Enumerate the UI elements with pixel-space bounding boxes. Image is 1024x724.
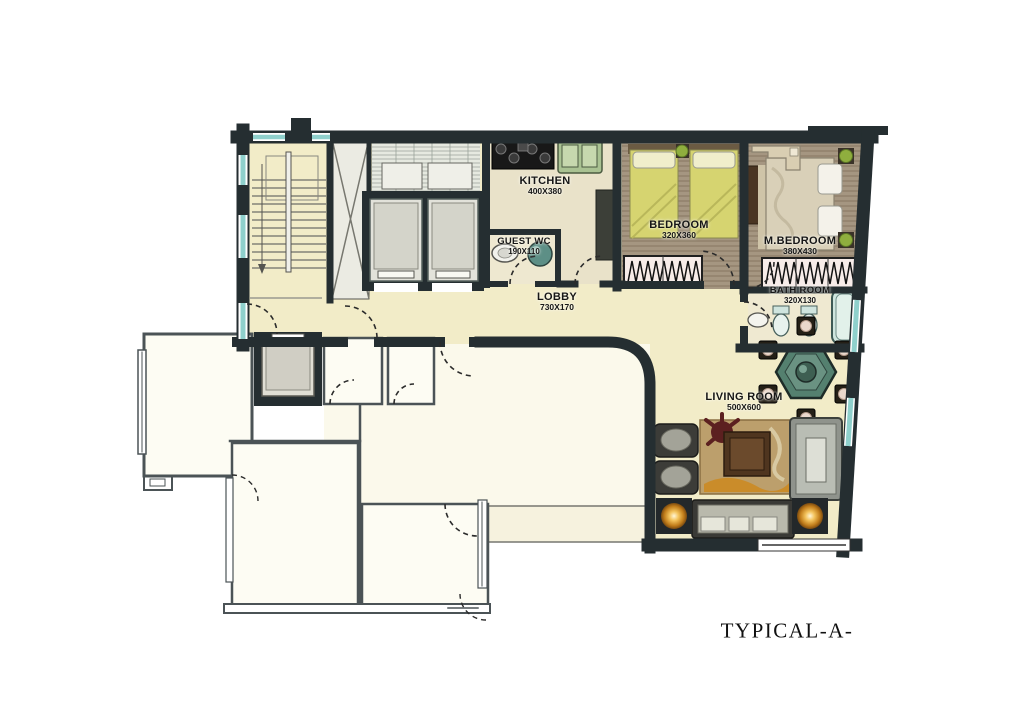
room-dims: 500X600 (727, 403, 761, 413)
living-window-sill (758, 539, 850, 551)
armchair-1 (654, 424, 698, 457)
floor-lamp-2 (792, 498, 828, 534)
elevator-block (362, 191, 484, 292)
toilet-1 (773, 306, 789, 336)
room-dims: 400X380 (528, 187, 562, 197)
bedside-plant (676, 144, 689, 158)
coffee-table (724, 432, 770, 476)
elevator-1 (370, 199, 422, 292)
room-dims: 730X170 (540, 303, 574, 313)
room-dims: 380X430 (783, 247, 817, 257)
secondary-unit (138, 332, 650, 613)
plan-title: TYPICAL-A- (721, 619, 854, 644)
label-living-room: LIVING ROOM 500X600 (705, 391, 782, 413)
label-bedroom: BEDROOM 320X360 (649, 219, 709, 241)
wardrobe-master (762, 258, 858, 288)
floor-plan-canvas: KITCHEN 400X380 GUEST WC 190X110 BEDROOM… (0, 0, 1024, 724)
label-bath-room: BATH ROOM 320X130 (770, 286, 831, 306)
vent-louvers (372, 139, 480, 195)
room-dims: 320X130 (784, 297, 816, 306)
room-dims: 320X360 (662, 231, 696, 241)
tv-console (790, 418, 842, 500)
label-guest-wc: GUEST WC 190X110 (497, 237, 551, 257)
label-lobby: LOBBY 730X170 (537, 291, 577, 313)
elevator-2 (428, 199, 478, 292)
room-dims: 190X110 (508, 248, 540, 257)
floor-plan-drawing (0, 0, 1024, 724)
label-master-bedroom: M.BEDROOM 380X430 (764, 235, 836, 257)
label-kitchen: KITCHEN 400X380 (520, 175, 571, 197)
floor-lamp-1 (656, 498, 692, 534)
armchair-2 (654, 461, 698, 494)
sofa (692, 500, 794, 538)
kitchen-sink (558, 139, 602, 173)
bath-sink (748, 313, 768, 327)
